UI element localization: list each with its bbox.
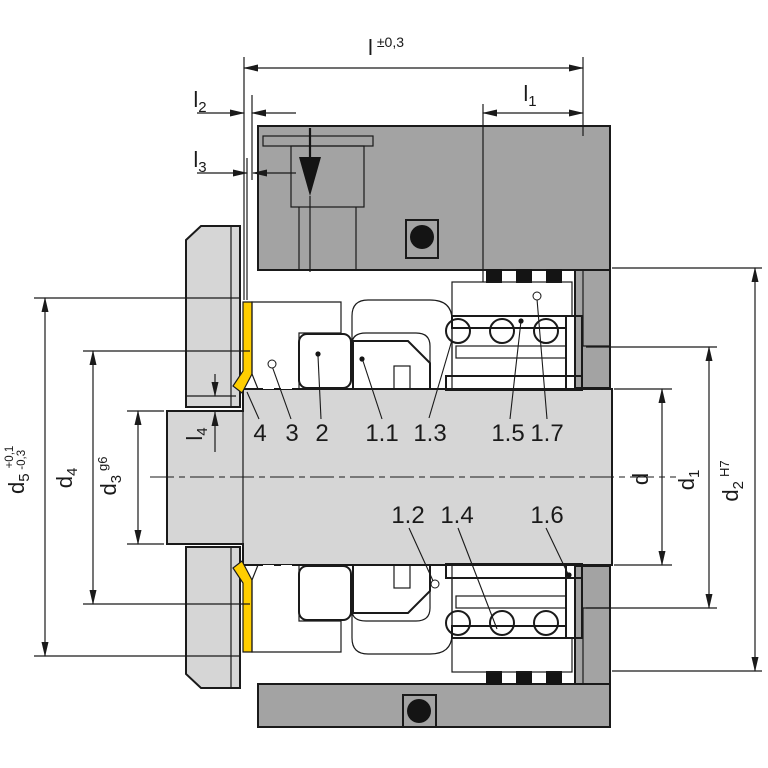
seat-rib bbox=[486, 269, 502, 283]
dim-d2: d2H7 bbox=[612, 268, 762, 671]
dim-label-d3: d3g6 bbox=[95, 456, 125, 495]
dim-label-l3: l3 bbox=[193, 147, 206, 176]
part-label-4: 4 bbox=[253, 420, 266, 447]
dim-label-l: l±0,3 bbox=[368, 34, 404, 60]
leader-dot-1-1 bbox=[359, 356, 364, 361]
housing-bottom-block bbox=[258, 684, 610, 727]
dim-label-d4: d4 bbox=[52, 468, 81, 489]
o-ring-bottom bbox=[407, 699, 431, 723]
o-ring-top bbox=[410, 225, 434, 249]
seat-rib bbox=[516, 269, 532, 283]
seal-installation-drawing: 4 3 2 1.1 1.3 1.5 1.7 1.2 1.4 1.6 l±0,3 … bbox=[0, 0, 768, 768]
dim-label-d5: d5+0,1-0,3 bbox=[4, 446, 33, 494]
seat-elastomer-block bbox=[452, 282, 572, 316]
gland-column-top bbox=[575, 270, 610, 388]
face-relief-notch bbox=[394, 366, 410, 389]
leader-dot-2 bbox=[315, 351, 320, 356]
leader-dot-1-5 bbox=[518, 318, 523, 323]
bearing-wall-bottom bbox=[186, 547, 240, 688]
part-label-1-5: 1.5 bbox=[491, 420, 524, 447]
part-label-1-3: 1.3 bbox=[413, 420, 446, 447]
leader-dot-1-7 bbox=[533, 292, 541, 300]
dim-label-l1: l1 bbox=[523, 81, 536, 110]
seal-assembly-bottom bbox=[233, 561, 582, 685]
dim-label-d: d bbox=[628, 473, 653, 485]
drawing-canvas: 4 3 2 1.1 1.3 1.5 1.7 1.2 1.4 1.6 l±0,3 … bbox=[0, 0, 768, 768]
leader-dot-3 bbox=[268, 360, 276, 368]
gland-column-bottom bbox=[575, 566, 610, 684]
part-label-1-1: 1.1 bbox=[365, 420, 398, 447]
part-label-2: 2 bbox=[315, 420, 328, 447]
part-label-1-4: 1.4 bbox=[440, 502, 473, 529]
seal-assembly-top bbox=[233, 269, 582, 393]
dim-label-l2: l2 bbox=[193, 87, 206, 116]
collar-notch bbox=[263, 379, 274, 389]
elastomer-bellows-block bbox=[299, 334, 351, 388]
shaft bbox=[150, 389, 676, 565]
part-label-1-7: 1.7 bbox=[530, 420, 563, 447]
part-label-1-2: 1.2 bbox=[391, 502, 424, 529]
bellows-arch bbox=[352, 300, 452, 389]
collar-notch bbox=[281, 379, 292, 389]
spring-coil bbox=[446, 319, 470, 343]
part-label-3: 3 bbox=[285, 420, 298, 447]
part-label-1-6: 1.6 bbox=[530, 502, 563, 529]
spring-coil bbox=[490, 319, 514, 343]
seat-retainer-strip bbox=[456, 346, 566, 358]
leader-dot-1-2 bbox=[431, 580, 439, 588]
drive-collar bbox=[252, 302, 341, 389]
spring-coil bbox=[534, 319, 558, 343]
leader-dot-1-6 bbox=[566, 572, 571, 577]
seat-rib bbox=[546, 269, 562, 283]
bearing-wall-top bbox=[186, 226, 240, 407]
dim-label-d1: d1 bbox=[674, 470, 703, 491]
dim-label-d2: d2H7 bbox=[717, 460, 747, 501]
